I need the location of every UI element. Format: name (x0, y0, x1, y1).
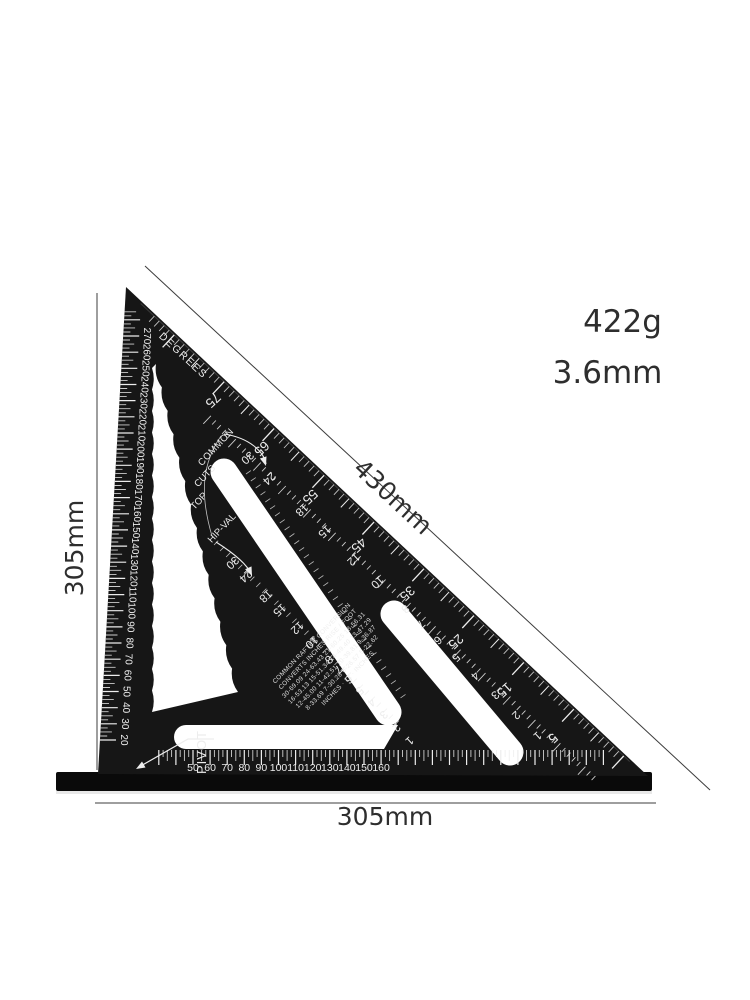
left-ruler-label: 230 (137, 392, 148, 409)
bottom-ruler-label: 70 (221, 762, 233, 774)
product-photo: 2030405060708090100110120130140150160170… (0, 0, 750, 1000)
left-ruler-label: 50 (121, 686, 132, 698)
left-ruler-label: 20 (118, 734, 129, 746)
bottom-ruler-label: 150 (355, 762, 373, 774)
left-ruler-label: 60 (122, 670, 133, 682)
flange-shadow (56, 791, 652, 794)
left-ruler-label: 160 (131, 505, 142, 522)
left-ruler-label: 70 (123, 654, 134, 666)
left-ruler-label: 170 (132, 489, 143, 506)
bottom-ruler-label: 130 (321, 762, 339, 774)
left-ruler-label: 120 (127, 570, 138, 587)
left-ruler-label: 130 (128, 554, 139, 571)
left-ruler-label: 220 (137, 408, 148, 425)
left-ruler-label: 80 (124, 637, 135, 649)
bottom-ruler-label: 120 (304, 762, 322, 774)
left-ruler-label: 270 (141, 328, 152, 345)
left-ruler-label: 200 (135, 441, 146, 458)
bottom-ruler-label: 90 (256, 762, 268, 774)
bottom-ruler-label: 80 (238, 762, 250, 774)
left-ruler-label: 190 (134, 457, 145, 474)
left-ruler-label: 260 (140, 344, 151, 361)
bottom-ruler-label: 140 (338, 762, 356, 774)
left-ruler-label: 210 (136, 425, 147, 442)
bottom-ruler-label: 160 (372, 762, 390, 774)
left-ruler-label: 240 (138, 376, 149, 393)
thickness-annotation: 3.6mm (550, 356, 665, 390)
pivot-label: PIVOT (194, 730, 209, 774)
bottom-ruler-label: 110 (287, 762, 304, 774)
left-ruler-label: 150 (130, 522, 141, 539)
left-ruler-label: 140 (129, 538, 140, 555)
left-ruler-label: 30 (119, 718, 130, 730)
weight-annotation: 422g (565, 305, 680, 339)
left-ruler-label: 100 (125, 602, 136, 619)
left-ruler-label: 250 (139, 360, 150, 377)
dimension-label-bottom: 305mm (330, 803, 440, 831)
left-ruler-label: 90 (124, 621, 135, 633)
dimension-label-left: 305mm (61, 493, 91, 603)
left-ruler-label: 40 (120, 702, 131, 714)
left-ruler-label: 180 (133, 473, 144, 490)
bottom-ruler-label: 100 (270, 762, 288, 774)
left-ruler-label: 110 (126, 587, 137, 603)
